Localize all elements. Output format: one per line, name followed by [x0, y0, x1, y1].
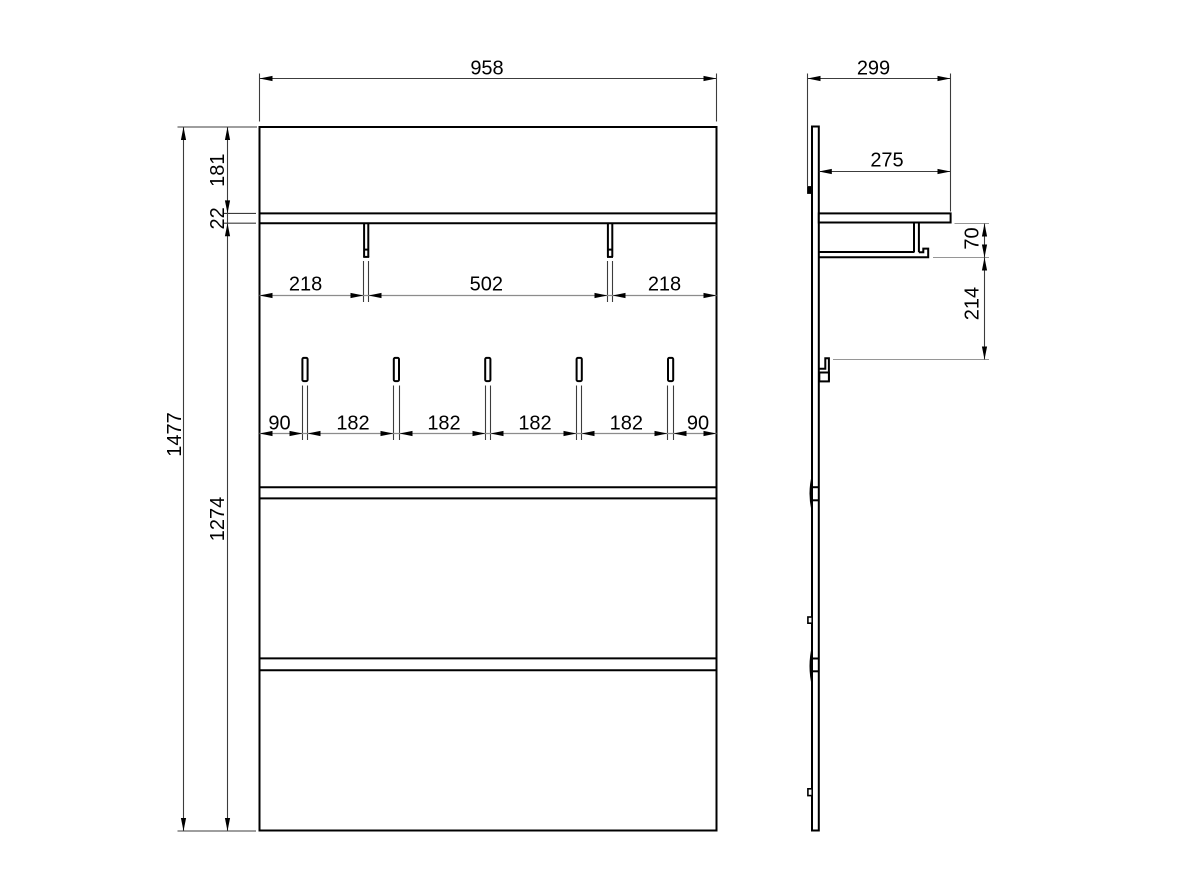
svg-text:214: 214	[962, 287, 984, 320]
svg-text:958: 958	[470, 58, 503, 80]
svg-text:1274: 1274	[207, 497, 229, 542]
svg-text:1477: 1477	[164, 412, 186, 457]
svg-text:181: 181	[207, 154, 229, 187]
svg-text:182: 182	[427, 412, 460, 434]
svg-text:70: 70	[962, 227, 984, 249]
svg-text:90: 90	[687, 412, 709, 434]
svg-text:502: 502	[470, 273, 503, 295]
svg-text:218: 218	[648, 273, 681, 295]
svg-text:275: 275	[870, 149, 903, 171]
svg-text:182: 182	[610, 412, 643, 434]
svg-text:22: 22	[207, 207, 229, 229]
svg-text:218: 218	[289, 273, 322, 295]
svg-text:299: 299	[857, 58, 890, 80]
svg-text:182: 182	[518, 412, 551, 434]
svg-text:90: 90	[268, 412, 290, 434]
svg-text:182: 182	[336, 412, 369, 434]
